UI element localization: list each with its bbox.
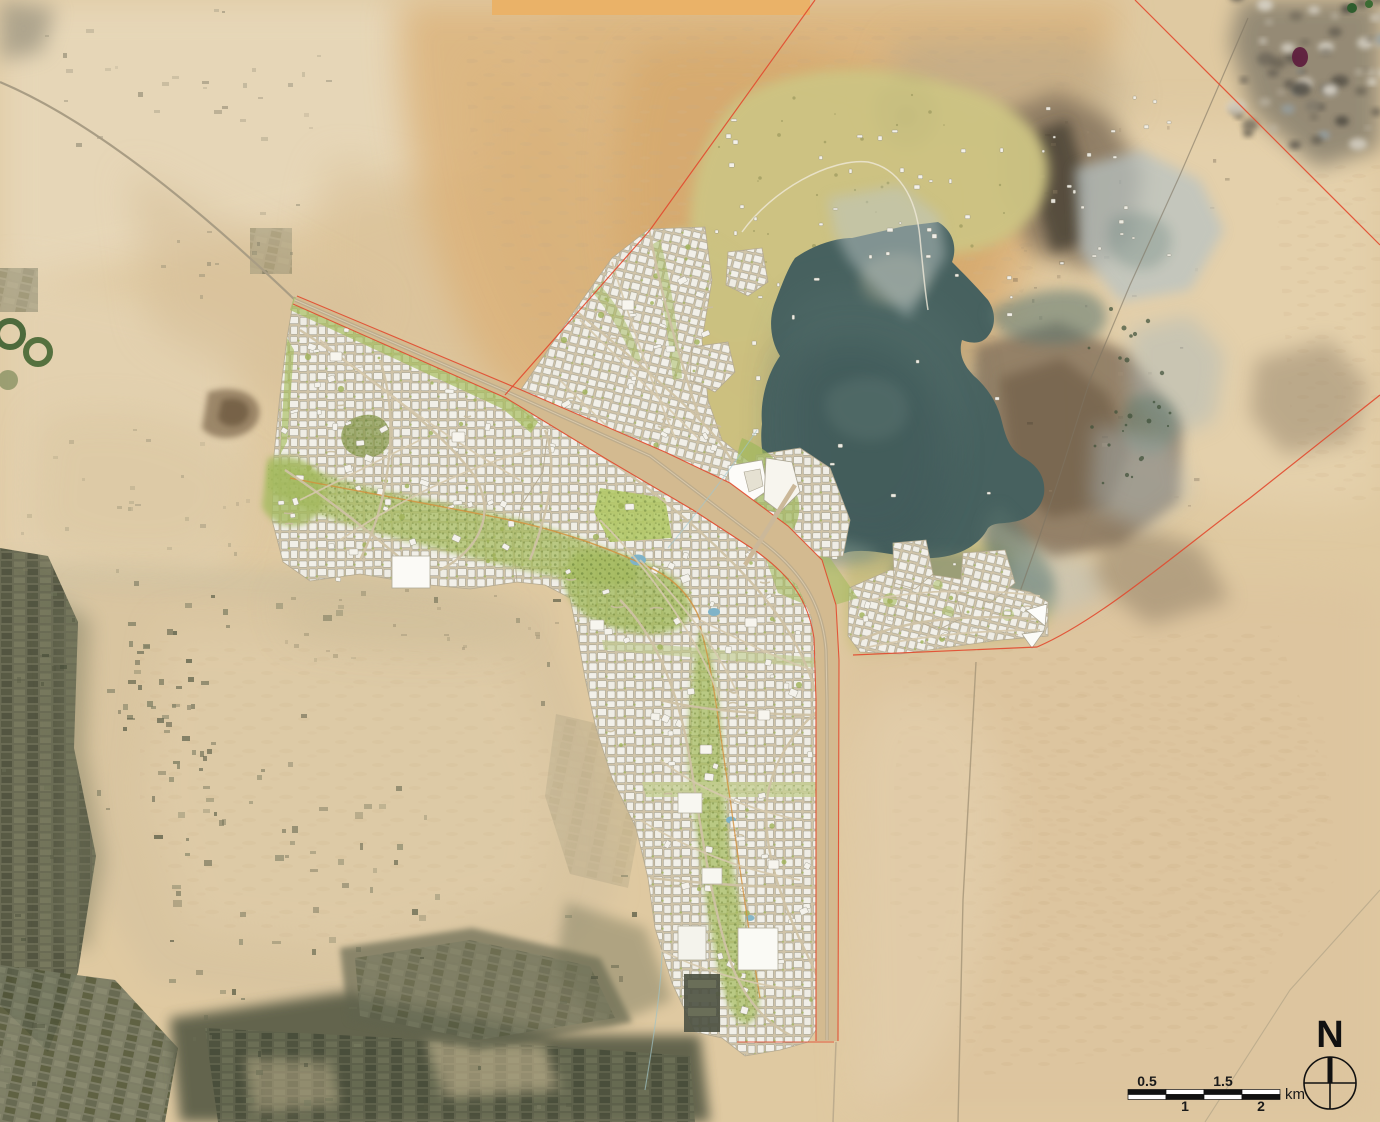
svg-text:0.5: 0.5 bbox=[1137, 1073, 1157, 1089]
svg-text:N: N bbox=[1316, 1014, 1343, 1056]
svg-text:2: 2 bbox=[1257, 1098, 1265, 1114]
svg-text:1.5: 1.5 bbox=[1213, 1073, 1233, 1089]
svg-text:km: km bbox=[1285, 1086, 1305, 1103]
svg-text:1: 1 bbox=[1181, 1098, 1189, 1114]
